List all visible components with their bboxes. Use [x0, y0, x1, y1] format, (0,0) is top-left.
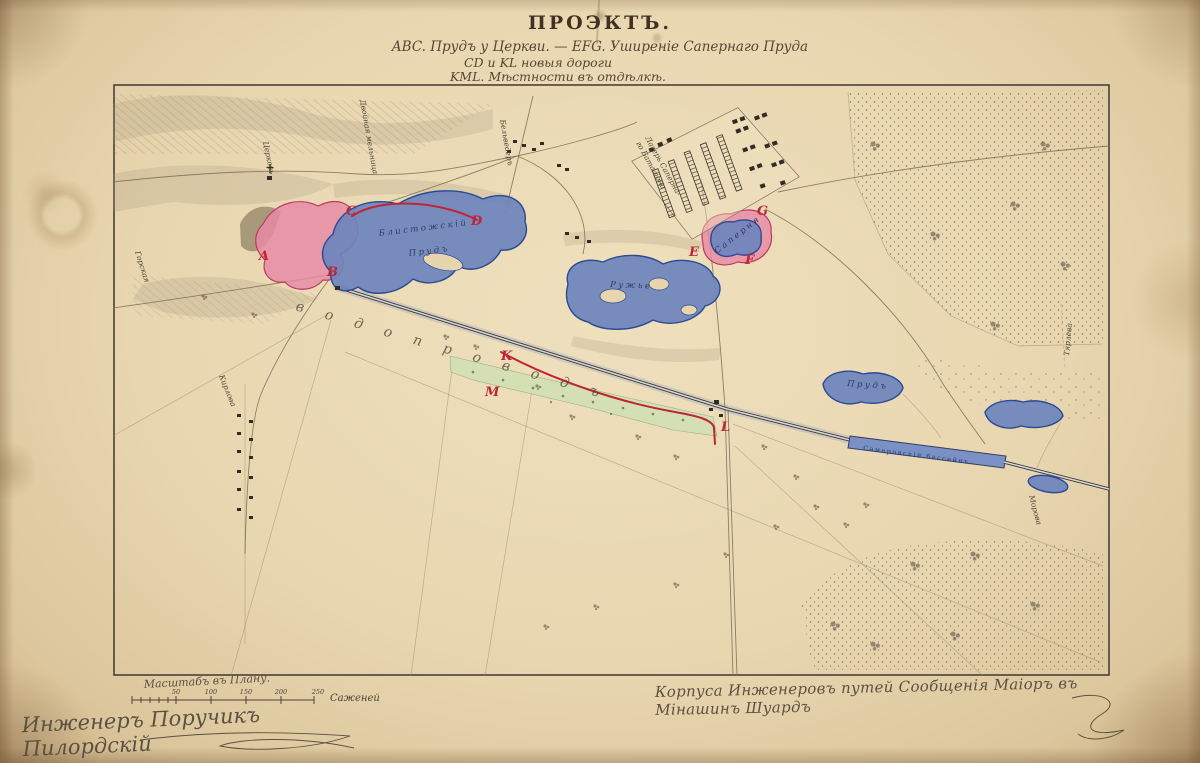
morova-label: Морова [1027, 493, 1044, 526]
marker-b: B [326, 265, 338, 280]
subtitle-line-1: ABC. Прудъ у Церкви. — EFG. Уширеніе Сап… [0, 39, 1200, 55]
marker-f: F [744, 253, 755, 268]
marker-l: L [720, 420, 730, 435]
pond-label-ruzhye: Ружье [609, 280, 653, 292]
signature-right-flourish [1058, 690, 1138, 750]
ruzhye-pond: Ружье [567, 255, 720, 329]
scale-tick-50: 50 [172, 688, 180, 696]
kirlova-label: Кирлова [217, 372, 238, 407]
tyarleva-label: Тярлева [1062, 323, 1074, 356]
marker-k: K [500, 349, 513, 364]
signature-left-flourish [130, 728, 360, 758]
marker-e: E [688, 245, 700, 260]
subtitle-line-3: KML. Мѣстности въ отдѣлкѣ. [0, 69, 1158, 84]
scale-tick-100: 100 [205, 688, 217, 696]
forest-north-east [848, 90, 1103, 346]
forest-south-east [801, 540, 1103, 670]
map-canvas: Блистожскій Прудъ Ружье Саперня Прудъ [113, 84, 1110, 676]
marker-c: C [346, 204, 357, 219]
scale-tick-150: 150 [240, 688, 252, 696]
page-title: ПРОЭКТЪ. [0, 12, 1200, 34]
aqueduct-word: водопроводъ [294, 298, 622, 406]
marker-a: A [257, 249, 269, 264]
marker-d: D [470, 214, 483, 229]
scale-tick-250: 250 [311, 688, 324, 696]
subtitle-line-2: CD и KL новыя дороги [0, 55, 1138, 70]
marker-m: M [484, 385, 500, 400]
scale-tick-200: 200 [274, 688, 287, 696]
map-sheet: ПРОЭКТЪ. ABC. Прудъ у Церкви. — EFG. Уши… [0, 0, 1200, 763]
marker-g: G [757, 204, 768, 219]
church-building [267, 176, 272, 180]
